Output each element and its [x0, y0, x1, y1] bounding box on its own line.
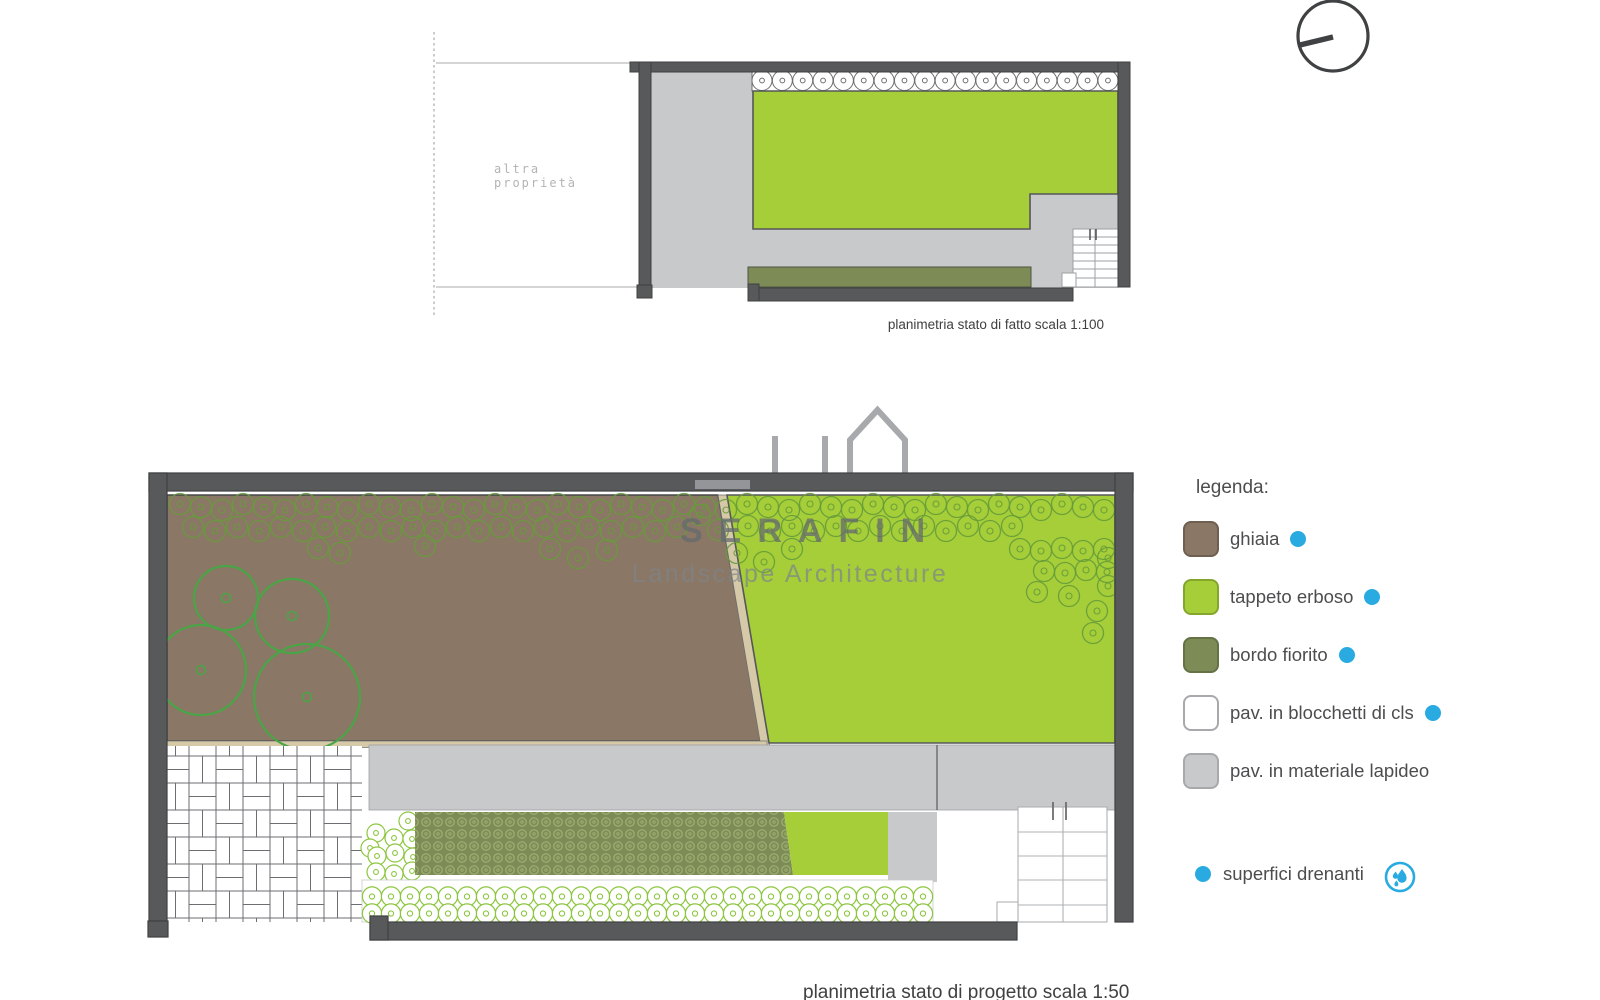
plant-cluster-left	[361, 812, 422, 883]
drainage-note-label: superfici drenanti	[1223, 863, 1364, 885]
top-wall	[630, 62, 1130, 72]
north-compass-icon	[1298, 1, 1368, 71]
concrete-block-paving-basketweave	[167, 746, 362, 922]
legend-item-label: pav. in materiale lapideo	[1230, 760, 1429, 782]
left-wall	[149, 473, 167, 921]
gravel-swatch	[1183, 521, 1219, 557]
bottom-wall-stub	[748, 284, 759, 301]
stone-paving-band	[369, 745, 1115, 810]
drawing-sheet: altra proprietà planimetria stato di fat…	[0, 0, 1600, 1000]
legend-item-tappeto-erboso: tappeto erboso	[1183, 578, 1380, 616]
project-plan-caption: planimetria stato di progetto scala 1:50	[803, 982, 1129, 1000]
flower-border-strip	[748, 267, 1031, 287]
drainable-dot-icon	[1339, 647, 1355, 663]
lawn-patch	[784, 812, 888, 875]
lawn-swatch	[1183, 579, 1219, 615]
bottom-wall-bar	[370, 922, 1017, 940]
drainable-dot-icon	[1425, 705, 1441, 721]
drainable-dot-icon	[1195, 866, 1211, 882]
neighbor-property-label: altra proprietà	[494, 162, 577, 190]
legend-item-materiale-lapideo: pav. in materiale lapideo	[1183, 752, 1429, 790]
site-plans-drawing	[0, 0, 1600, 1000]
watermark-firm-name: SERAFIN	[680, 512, 941, 551]
stair-landing-notch	[997, 902, 1018, 922]
staircase	[997, 802, 1107, 922]
stone-paving-swatch	[1183, 753, 1219, 789]
stair-landing-notch	[1062, 273, 1076, 287]
legend-item-bordo-fiorito: bordo fiorito	[1183, 636, 1355, 674]
right-wall	[1115, 473, 1133, 922]
legend-item-label: pav. in blocchetti di cls	[1230, 702, 1414, 724]
legend-title: legenda:	[1196, 477, 1269, 499]
project-state-plan	[148, 410, 1133, 940]
logo-bar-icon	[772, 436, 778, 473]
logo-bar-icon	[822, 436, 828, 473]
top-wall	[149, 473, 1133, 491]
left-wall	[639, 62, 651, 292]
left-wall-foot	[637, 285, 652, 298]
legend-item-label: tappeto erboso	[1230, 586, 1353, 608]
legend-item-ghiaia: ghiaia	[1183, 520, 1306, 558]
concrete-block-swatch	[1183, 695, 1219, 731]
right-wall	[1118, 62, 1130, 287]
watermark-firm-subtitle: Landscape Architecture	[632, 560, 948, 589]
serafin-logo-mark	[772, 410, 905, 474]
legend-item-blocchetti-cls: pav. in blocchetti di cls	[1183, 694, 1441, 732]
logo-house-icon	[850, 410, 905, 474]
left-wall-foot	[148, 921, 168, 937]
stone-paving-patch	[888, 812, 937, 882]
legend-item-label: bordo fiorito	[1230, 644, 1328, 666]
drainable-dot-icon	[1290, 531, 1306, 547]
drainable-dot-icon	[1364, 589, 1380, 605]
existing-plan-caption: planimetria stato di fatto scala 1:100	[880, 317, 1104, 332]
water-drops-icon	[1386, 863, 1414, 891]
bottom-wall-bar	[748, 288, 1073, 301]
legend-item-label: ghiaia	[1230, 528, 1279, 550]
logo-dash-on-wall	[695, 480, 750, 489]
bottom-wall-stub	[370, 916, 388, 940]
legend-drainage-note: superfici drenanti	[1195, 863, 1364, 885]
flower-border-swatch	[1183, 637, 1219, 673]
flower-border-texture	[415, 812, 793, 875]
